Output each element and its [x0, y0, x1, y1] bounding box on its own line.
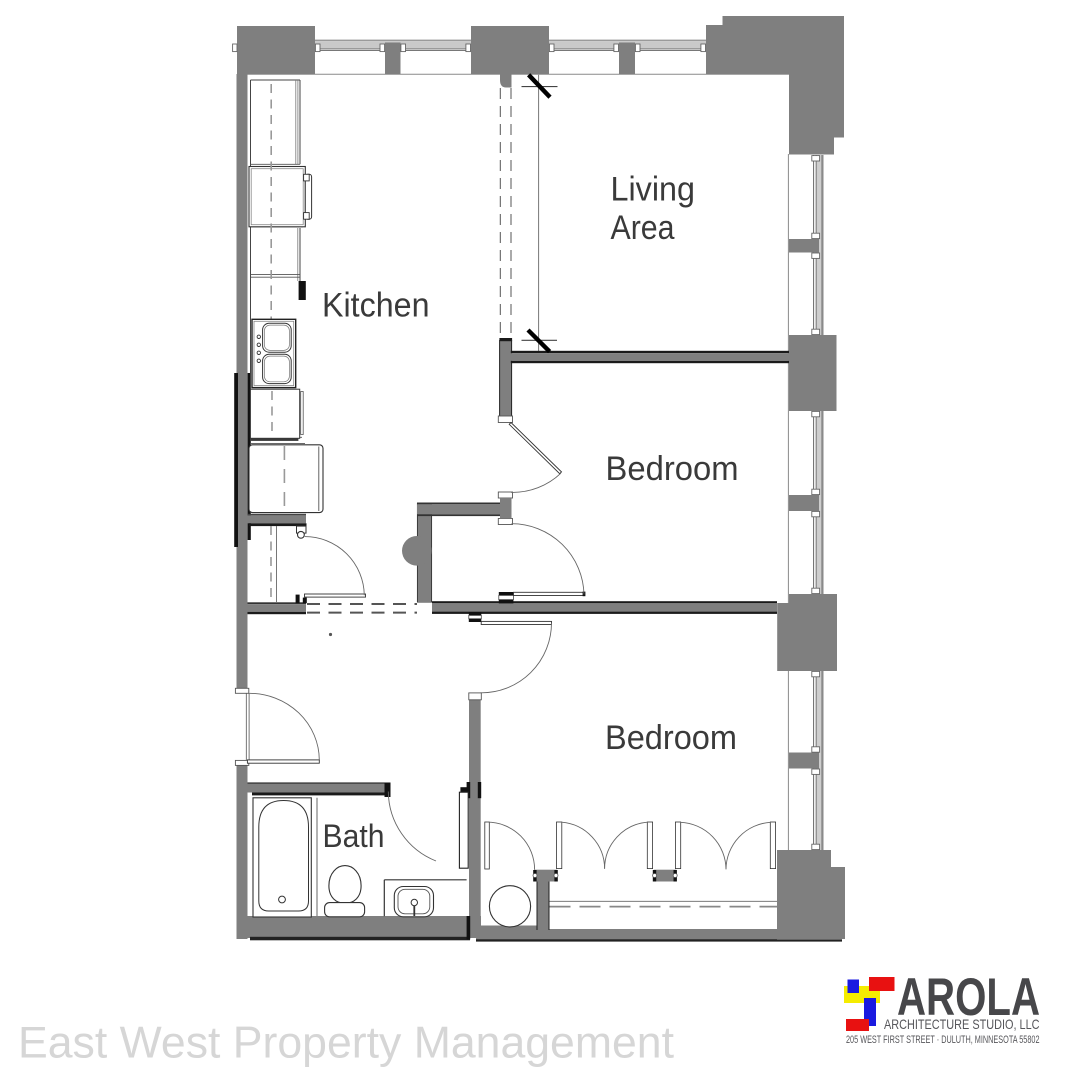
svg-text:Kitchen: Kitchen	[322, 286, 430, 324]
svg-text:Living: Living	[611, 171, 696, 209]
svg-text:Bath: Bath	[323, 818, 385, 854]
svg-text:ARCHITECTURE STUDIO, LLC: ARCHITECTURE STUDIO, LLC	[884, 1017, 1040, 1032]
svg-text:East West Property Management: East West Property Management	[18, 1019, 675, 1068]
svg-text:Bedroom: Bedroom	[605, 719, 737, 757]
svg-text:205 WEST FIRST STREET · DULUTH: 205 WEST FIRST STREET · DULUTH, MINNESOT…	[846, 1034, 1040, 1046]
svg-text:Area: Area	[611, 209, 675, 247]
svg-text:Bedroom: Bedroom	[606, 450, 739, 488]
